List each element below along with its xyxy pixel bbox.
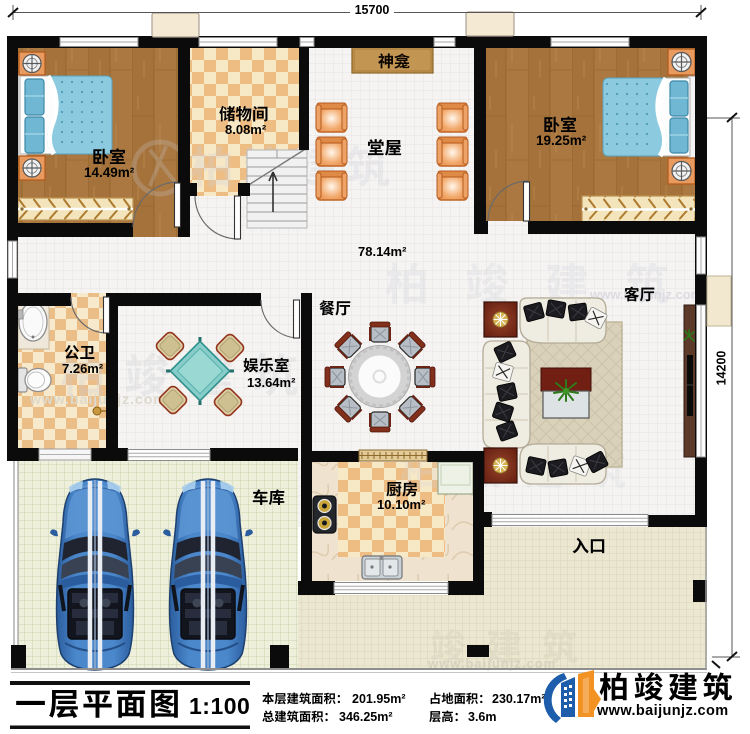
- svg-text:78.14m²: 78.14m²: [358, 244, 407, 259]
- svg-text:230.17m²: 230.17m²: [492, 692, 546, 706]
- svg-text:www.baijunjz.com: www.baijunjz.com: [596, 703, 729, 719]
- svg-text:346.25m²: 346.25m²: [339, 710, 393, 724]
- svg-text:19.25m²: 19.25m²: [536, 133, 587, 148]
- svg-text:7.26m²: 7.26m²: [62, 361, 104, 376]
- svg-text:14.49m²: 14.49m²: [84, 165, 135, 180]
- svg-text:13.64m²: 13.64m²: [247, 375, 296, 390]
- svg-text:8.08m²: 8.08m²: [225, 122, 267, 137]
- svg-text:www.baijunjz.com: www.baijunjz.com: [29, 391, 167, 407]
- svg-text:1:100: 1:100: [189, 693, 250, 719]
- svg-text:3.6m: 3.6m: [468, 710, 497, 724]
- svg-text:201.95m²: 201.95m²: [352, 692, 406, 706]
- svg-text:15700: 15700: [355, 3, 390, 17]
- svg-text:10.10m²: 10.10m²: [377, 497, 426, 512]
- svg-text:14200: 14200: [715, 351, 729, 386]
